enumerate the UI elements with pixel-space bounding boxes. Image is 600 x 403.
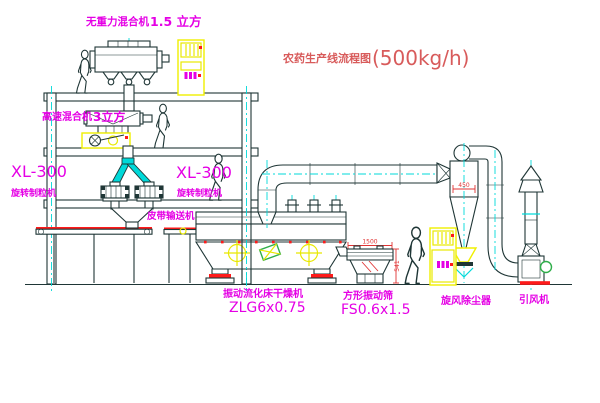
cad-drawing: 450 1500 <box>0 0 600 403</box>
label-gravity-mixer-name: 无重力混合机 <box>85 15 149 28</box>
label-sieve-name: 方形振动筛 <box>343 289 393 302</box>
fan-motor <box>541 262 552 273</box>
mixer-discharge-funnels <box>103 72 155 85</box>
label-hs-mixer-size: 3立方 <box>93 109 125 124</box>
label-belt-conveyor: 皮带输送机 <box>146 210 195 222</box>
label-fan: 引风机 <box>519 293 549 306</box>
label-hs-mixer-name: 高速混合机 <box>42 110 92 123</box>
label-granulator-left-name: 旋转制粒机 <box>10 187 56 199</box>
process-flow-diagram: 450 1500 <box>0 0 600 403</box>
label-granulator-center-name: 旋转制粒机 <box>176 187 222 199</box>
label-granulator-center-model: XL-300 <box>176 163 232 182</box>
control-cabinet-2 <box>430 228 456 285</box>
exhaust-stack <box>525 192 537 244</box>
stack-cap <box>519 180 543 192</box>
label-sieve-model: FS0.6x1.5 <box>341 302 411 318</box>
diagram-title-capacity: (500kg/h) <box>372 46 469 70</box>
label-dryer-model: ZLG6x0.75 <box>229 300 306 316</box>
label-granulator-left-model: XL-300 <box>11 162 67 181</box>
fan-base <box>520 281 550 285</box>
cyclone-dim-text: 450 <box>458 182 470 189</box>
label-cyclone: 旋风除尘器 <box>440 294 492 307</box>
diagram-title: 农药生产线流程图 <box>282 51 371 65</box>
sieve-height-text: 541 <box>394 260 401 272</box>
sieve-length-text: 1500 <box>362 239 377 246</box>
label-gravity-mixer-size: 1.5 立方 <box>150 14 202 29</box>
label-dryer-name: 振动流化床干燥机 <box>223 287 303 300</box>
control-cabinet-1 <box>178 40 204 95</box>
